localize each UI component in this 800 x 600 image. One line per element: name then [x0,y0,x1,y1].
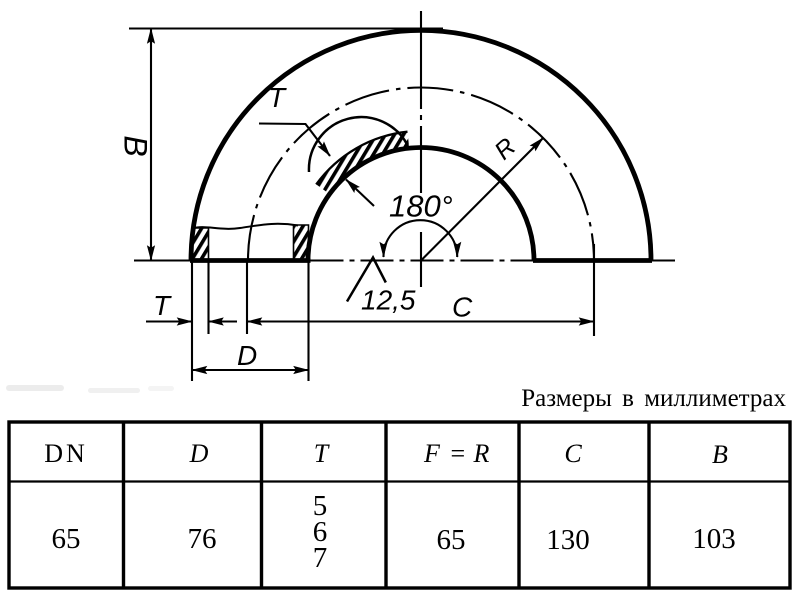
svg-text:R: R [473,439,490,468]
svg-text:103: 103 [692,523,736,555]
svg-text:R: R [489,133,521,166]
svg-text:=: = [451,439,466,468]
svg-text:Размеры в миллиметрах: Размеры в миллиметрах [521,385,786,412]
svg-text:C: C [564,439,582,468]
svg-text:7: 7 [313,542,328,574]
svg-text:65: 65 [52,523,81,555]
svg-text:DN: DN [44,439,88,468]
svg-text:T: T [268,82,287,113]
svg-text:B: B [712,440,728,469]
svg-text:130: 130 [546,524,590,556]
svg-text:°: ° [441,191,453,223]
svg-text:180: 180 [389,189,441,224]
svg-text:C: C [452,292,473,323]
svg-text:65: 65 [437,524,466,556]
svg-text:T: T [153,290,172,321]
svg-text:D: D [237,340,257,371]
svg-text:B: B [118,135,154,156]
svg-text:D: D [189,439,209,468]
svg-text:T: T [314,439,330,468]
svg-text:76: 76 [188,523,217,555]
svg-text:F: F [423,439,441,468]
svg-text:12,5: 12,5 [361,285,416,316]
